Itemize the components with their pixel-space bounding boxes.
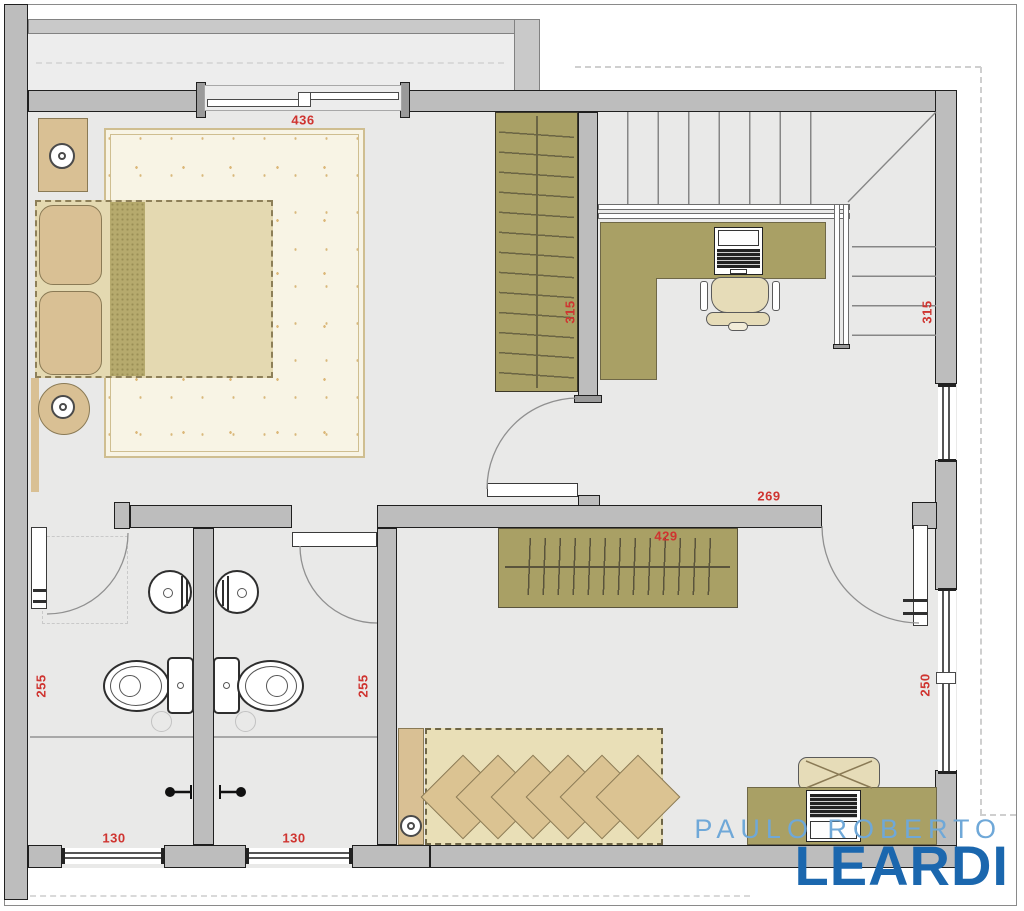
toilet-flush-button (223, 682, 230, 689)
stair-railing-side-outer (834, 204, 840, 346)
pillow-icon (39, 205, 102, 285)
toilet-flush-button (177, 682, 184, 689)
floor-drain-icon (235, 711, 256, 732)
sink-edge-line (227, 576, 229, 610)
sink-edge-line (186, 580, 188, 606)
dim-bath1-window: 130 (102, 831, 125, 846)
chair-armrest (700, 281, 708, 311)
wall-bathroom-divider (193, 528, 214, 845)
laptop-touchpad (730, 269, 747, 274)
dim-hall: 269 (757, 489, 780, 504)
window-glass-line (942, 387, 944, 459)
window-top-sash-junction (298, 92, 311, 107)
roof-projection-dashed-right (980, 67, 982, 815)
wall-bottom-a (28, 845, 62, 868)
stair-railing-end-cap (833, 344, 850, 349)
dim-closet-master: 315 (563, 300, 578, 323)
desk-return (600, 278, 657, 380)
wall-corridor-notch (578, 495, 600, 506)
master-bedroom-door-leaf (487, 483, 578, 497)
bed-blanket-band (110, 202, 145, 376)
dim-stairs: 315 (920, 300, 935, 323)
dim-window-top: 436 (291, 113, 314, 128)
sink-icon (215, 570, 259, 614)
sink-drain (237, 588, 247, 598)
chair-headrest (728, 322, 748, 331)
wall-top-left (28, 90, 200, 112)
dim-bath2-window: 130 (282, 831, 305, 846)
window-top-sash-right (303, 92, 399, 100)
stairs-icon (598, 112, 838, 204)
sink-edge-line (181, 576, 183, 610)
wall-bottom-pier1 (164, 845, 246, 868)
wall-corridor-jamb-left (114, 502, 130, 529)
lamp-center-dot (59, 403, 67, 411)
sink-icon (148, 570, 192, 614)
window-bath1-130 (62, 848, 164, 864)
wall-closet-cap (574, 395, 602, 403)
shower-partition-line (214, 736, 377, 738)
wall-bath2-bedroom-divider (377, 528, 397, 845)
desk-icon (600, 222, 826, 279)
bed2-lamp-icon (400, 815, 422, 837)
watermark-logo: LEARDI (795, 838, 1009, 894)
laptop-keyboard (717, 249, 760, 268)
dim-wardrobe: 429 (654, 529, 677, 544)
window-hall-right (938, 384, 956, 462)
lamp-center-dot (407, 822, 415, 830)
dim-window-right: 250 (918, 673, 933, 696)
laptop-icon (714, 227, 763, 275)
toilet-drain (119, 675, 141, 697)
window-glass-line (948, 387, 950, 459)
stair-railing-top-inner (598, 213, 850, 219)
wall-right-middle (935, 460, 957, 590)
dim-bath1: 255 (34, 674, 49, 697)
stair-railing-side-inner (843, 204, 849, 346)
bath2-door-leaf (292, 532, 377, 547)
door-handle (903, 599, 927, 602)
window-250-junction (936, 672, 956, 684)
laptop-screen (718, 230, 759, 246)
shower-partition-line (30, 736, 193, 738)
wall-corridor-right (377, 505, 822, 528)
stairs-lower-flight (852, 218, 936, 346)
pillow-icon (39, 291, 102, 375)
office-chair-icon (711, 277, 769, 313)
door-handle (903, 612, 927, 615)
terrace-side-wall (514, 19, 540, 93)
terrace-parapet (28, 19, 540, 34)
terrace-center-dashed-line (36, 62, 504, 64)
window-glass-line (249, 857, 349, 859)
side-table-lamp-icon (51, 395, 75, 419)
window-glass-line (249, 852, 349, 854)
wall-bottom-pier2 (352, 845, 430, 868)
door-handle (33, 600, 46, 603)
window-glass-line (65, 852, 161, 854)
bath1-door-leaf (31, 527, 47, 609)
bottom-dashed-line (30, 895, 750, 897)
sink-drain (163, 588, 173, 598)
bath1-door-swing-area (42, 536, 128, 624)
wall-left (4, 4, 28, 900)
wall-top-right (407, 90, 937, 112)
floor-drain-icon (151, 711, 172, 732)
roof-projection-dashed-top (575, 66, 981, 68)
bedroom2-door-leaf (913, 525, 928, 626)
bedside-ledge (31, 378, 39, 492)
toilet-drain (266, 675, 288, 697)
lamp-center-dot (58, 152, 66, 160)
door-handle (33, 589, 46, 592)
window-top-sash-left (207, 99, 307, 107)
chair-armrest (772, 281, 780, 311)
wall-right-upper (935, 90, 957, 384)
closet-rod-line (536, 116, 538, 388)
wardrobe-rod-line (505, 566, 730, 568)
floor-plan: 436 315 315 269 429 255 255 250 130 130 … (0, 0, 1024, 911)
window-glass-line (65, 857, 161, 859)
stair-railing-top-outer (598, 204, 850, 210)
wall-corridor-left (130, 505, 292, 528)
nightstand-lamp-icon (49, 143, 75, 169)
dim-bath2: 255 (356, 674, 371, 697)
sink-edge-line (222, 580, 224, 606)
office-chair-icon (798, 757, 880, 791)
wall-closet-hall (578, 112, 598, 397)
window-bath2-130 (246, 848, 352, 864)
